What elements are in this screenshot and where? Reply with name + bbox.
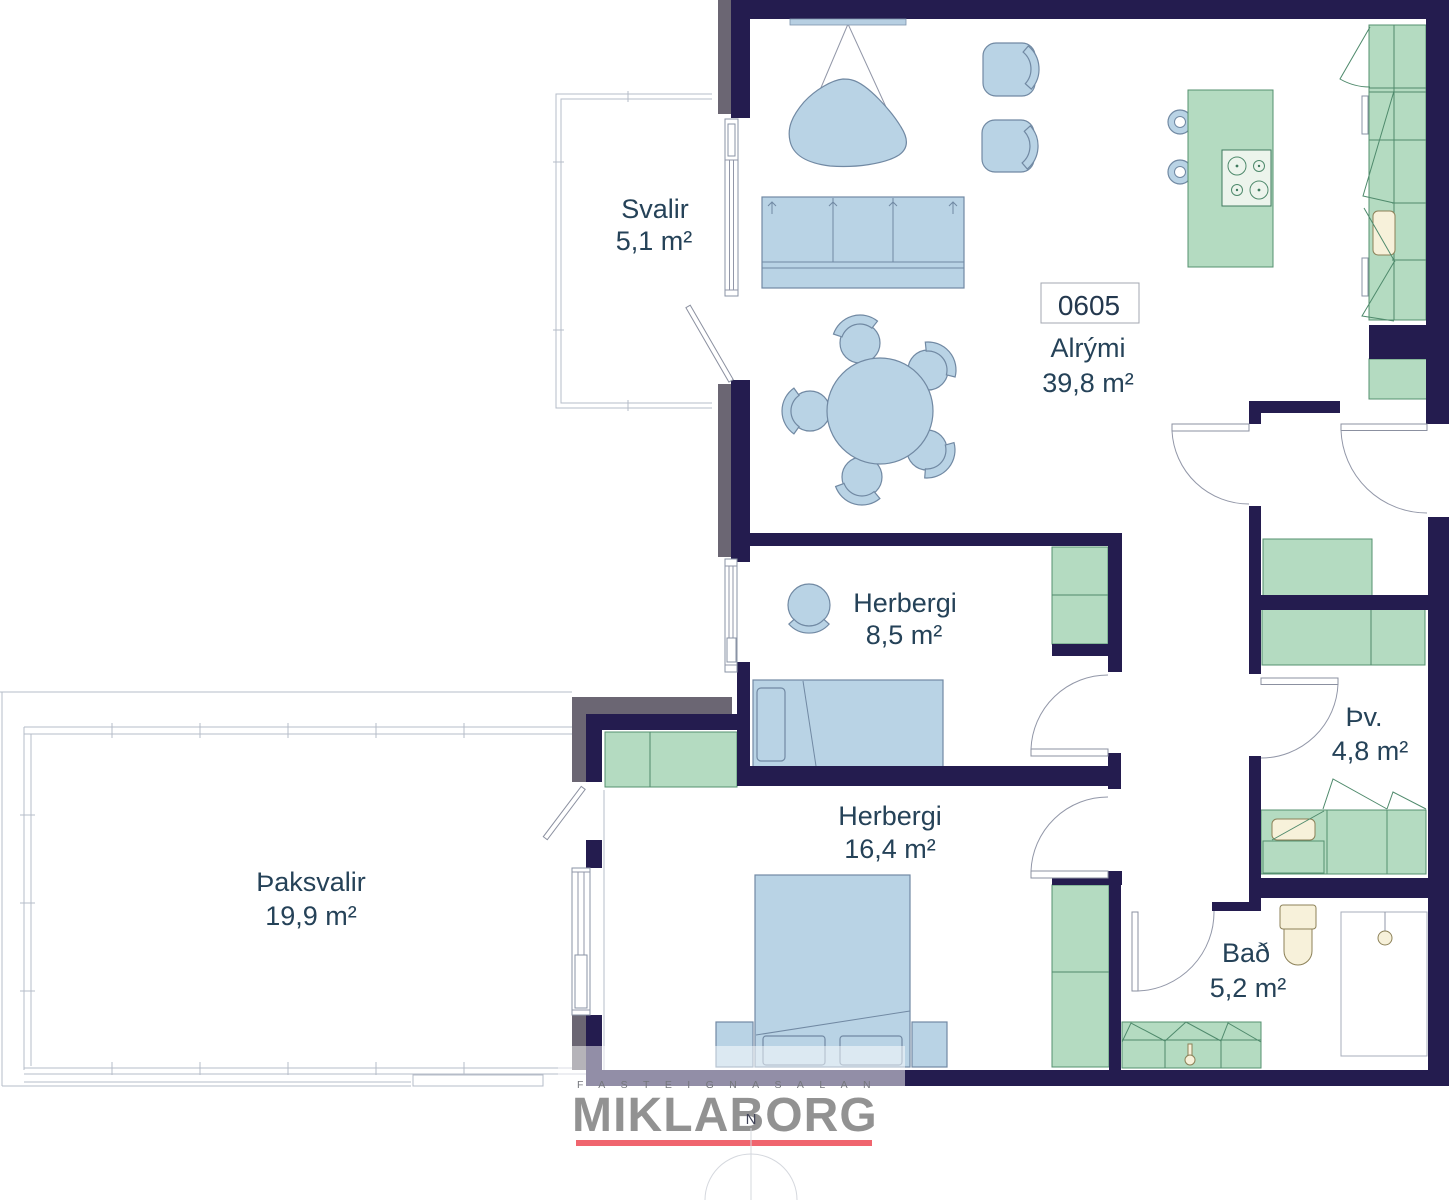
svg-text:Herbergi: Herbergi [853, 588, 957, 618]
svg-text:Þaksvalir: Þaksvalir [256, 867, 366, 897]
svg-text:8,5 m²: 8,5 m² [866, 620, 943, 650]
svg-text:19,9 m²: 19,9 m² [265, 901, 357, 931]
svg-text:Bað: Bað [1222, 938, 1270, 968]
svg-text:MIKLABORG: MIKLABORG [572, 1089, 878, 1142]
svg-text:39,8 m²: 39,8 m² [1042, 368, 1134, 398]
svg-text:5,1 m²: 5,1 m² [616, 226, 693, 256]
svg-text:Herbergi: Herbergi [838, 801, 942, 831]
svg-text:5,2 m²: 5,2 m² [1210, 973, 1287, 1003]
svg-text:Svalir: Svalir [621, 194, 689, 224]
svg-text:Alrými: Alrými [1051, 333, 1126, 363]
svg-text:N: N [746, 1111, 757, 1128]
svg-text:16,4 m²: 16,4 m² [844, 834, 936, 864]
svg-text:4,8 m²: 4,8 m² [1332, 736, 1409, 766]
svg-text:0605: 0605 [1058, 290, 1120, 321]
svg-text:Þv.: Þv. [1345, 702, 1382, 732]
